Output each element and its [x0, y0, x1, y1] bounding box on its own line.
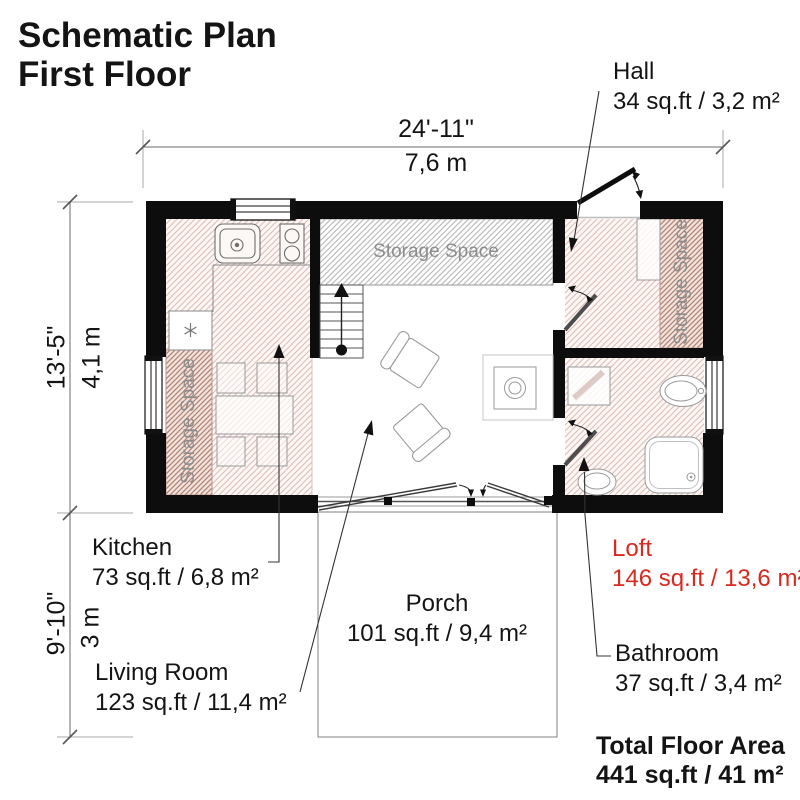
dim-height-main-imperial: 13'-5": [44, 298, 71, 418]
boiler-icon: [169, 311, 212, 350]
total-floor-area: Total Floor Area 441 sq.ft / 41 m²: [596, 732, 785, 790]
storage-space-label-hall: Storage Space: [671, 217, 693, 347]
dim-width-imperial: 24'-11": [336, 116, 536, 143]
kitchen-name: Kitchen: [92, 533, 259, 563]
floor-plan-page: Schematic Plan First Floor 24'-11" 7,6 m…: [0, 0, 800, 800]
storage-space-label-top: Storage Space: [336, 241, 536, 263]
toilet-icon: [660, 376, 706, 407]
porch-area: 101 sq.ft / 9,4 m²: [317, 619, 557, 649]
stove-icon: [280, 224, 304, 263]
page-title: Schematic Plan First Floor: [18, 16, 277, 94]
hall-closet: [637, 219, 660, 280]
porch-name: Porch: [317, 589, 557, 619]
loft-name: Loft: [612, 534, 800, 564]
window-icon-bathroom: [706, 356, 723, 434]
fireplace-icon: [483, 355, 553, 420]
hall-name: Hall: [613, 57, 780, 87]
sink-icon: [215, 224, 260, 263]
bathroom-sink-icon: [578, 469, 616, 495]
bifold-door-icon: [318, 483, 552, 511]
label-kitchen: Kitchen 73 sq.ft / 6,8 m²: [92, 533, 259, 593]
label-living-room: Living Room 123 sq.ft / 11,4 m²: [95, 658, 287, 718]
storage-space-label-kitchen: Storage Space: [178, 356, 200, 486]
entry-door-icon: [578, 169, 643, 203]
page-title-line1: Schematic Plan: [18, 16, 277, 55]
bathroom-area: 37 sq.ft / 3,4 m²: [615, 669, 782, 699]
total-floor-area-label: Total Floor Area: [596, 732, 785, 761]
washing-machine-icon: [568, 367, 610, 405]
window-icon-left: [145, 356, 162, 434]
living-room-area: 123 sq.ft / 11,4 m²: [95, 688, 287, 718]
hall-area: 34 sq.ft / 3,2 m²: [613, 87, 780, 117]
page-title-line2: First Floor: [18, 55, 277, 94]
bathroom-name: Bathroom: [615, 639, 782, 669]
dim-width-metric: 7,6 m: [336, 150, 536, 177]
label-hall: Hall 34 sq.ft / 3,2 m²: [613, 57, 780, 117]
shower-icon: [645, 437, 703, 493]
armchair-icon: [389, 401, 452, 464]
loft-area: 146 sq.ft / 13,6 m²: [612, 564, 800, 594]
total-floor-area-value: 441 sq.ft / 41 m²: [596, 761, 785, 790]
label-bathroom: Bathroom 37 sq.ft / 3,4 m²: [615, 639, 782, 699]
label-porch: Porch 101 sq.ft / 9,4 m²: [317, 589, 557, 649]
stairs-icon: [320, 283, 363, 358]
armchair-icon: [379, 330, 441, 391]
living-room-name: Living Room: [95, 658, 287, 688]
dim-height-porch-imperial: 9'-10": [44, 564, 71, 684]
kitchen-area: 73 sq.ft / 6,8 m²: [92, 563, 259, 593]
label-loft: Loft 146 sq.ft / 13,6 m²: [612, 534, 800, 594]
dim-height-main-metric: 4,1 m: [79, 298, 106, 418]
window-icon-kitchen: [231, 199, 295, 220]
